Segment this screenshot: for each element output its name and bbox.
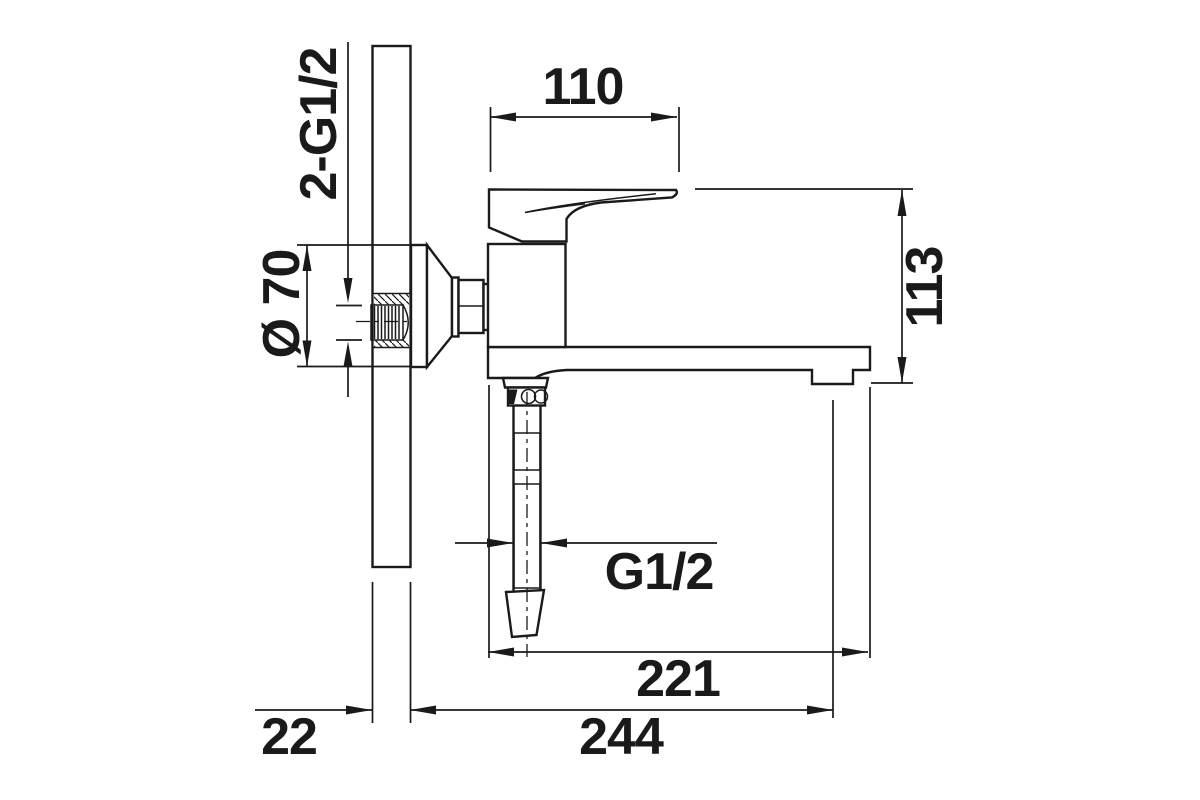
shower-hose <box>506 392 544 657</box>
wall-section <box>356 46 425 723</box>
dim-label-hose-thread: G1/2 <box>605 546 714 598</box>
dim-label-escutcheon-diameter: Ø 70 <box>256 250 308 359</box>
dim-label-wall-thickness: 22 <box>261 711 317 763</box>
hose-nut <box>508 388 548 406</box>
dimension-221 <box>488 385 870 658</box>
escutcheon-sleeve-section-top <box>374 294 409 306</box>
escutcheon-sleeve-section-bottom <box>374 340 409 348</box>
lever-handle <box>489 190 677 242</box>
faucet <box>488 190 870 406</box>
technical-drawing-canvas: 110 2-G1/2 Ø 70 113 G1/2 221 244 22 <box>0 0 1200 800</box>
hose-flange <box>503 378 548 388</box>
escutcheon-cone <box>427 245 452 367</box>
dim-label-handle-width: 110 <box>543 61 624 113</box>
escutcheon <box>411 245 489 367</box>
faucet-side-view-drawing <box>0 0 1200 800</box>
hose-end-fitting <box>506 590 544 637</box>
dim-label-overall-height: 113 <box>899 247 951 328</box>
dimension-110 <box>490 107 679 172</box>
dim-label-overall-depth: 244 <box>579 711 663 763</box>
dim-label-wall-thread: 2-G1/2 <box>293 48 345 201</box>
dim-label-spout-reach: 221 <box>636 653 720 705</box>
mixer-body <box>488 244 566 347</box>
